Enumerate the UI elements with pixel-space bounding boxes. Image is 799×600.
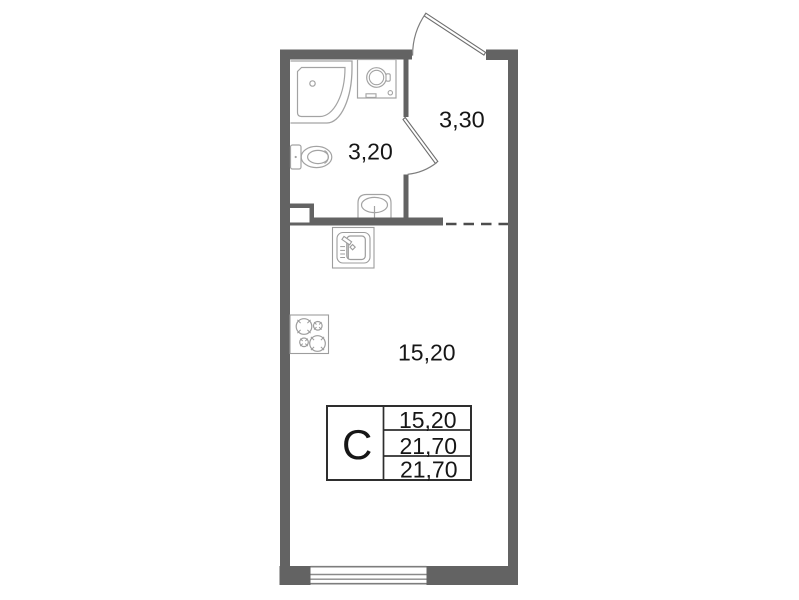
svg-text:15,20: 15,20 (399, 407, 457, 433)
svg-text:С: С (342, 421, 372, 468)
svg-text:3,30: 3,30 (439, 107, 485, 133)
svg-text:15,20: 15,20 (398, 340, 456, 366)
svg-text:3,20: 3,20 (348, 139, 393, 165)
svg-text:21,70: 21,70 (399, 433, 457, 459)
svg-text:21,70: 21,70 (400, 457, 458, 483)
